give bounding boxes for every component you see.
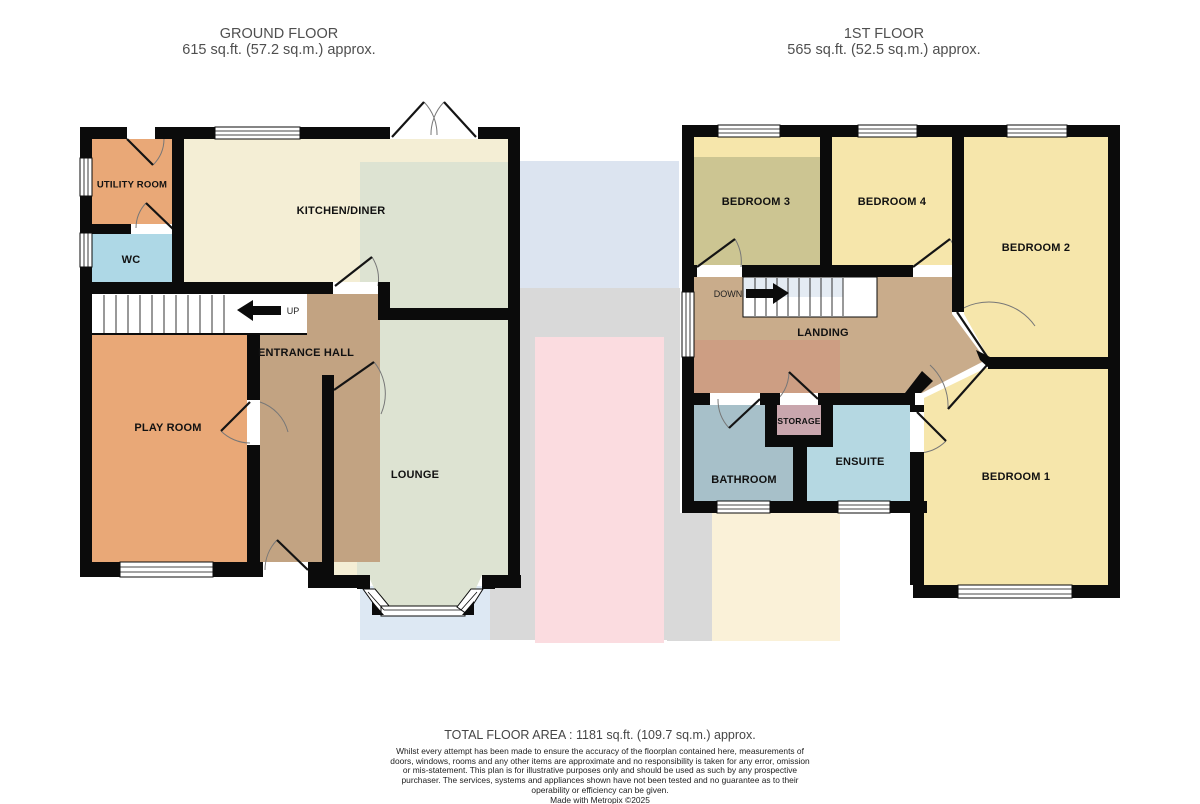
room-label-playroom: PLAY ROOM xyxy=(134,422,201,434)
first-floor-area-text: 565 sq.ft. (52.5 sq.m.) approx. xyxy=(787,42,980,58)
room-label-bathroom: BATHROOM xyxy=(711,474,777,486)
first-floor-stairs xyxy=(743,277,877,317)
ground-floor-stairs xyxy=(92,294,307,335)
window xyxy=(1007,125,1067,137)
room-label-utility: UTILITY ROOM xyxy=(97,180,167,191)
window xyxy=(718,125,780,137)
window xyxy=(858,125,917,137)
room-label-lounge: LOUNGE xyxy=(391,469,439,481)
window xyxy=(80,158,92,196)
room-label-ensuite: ENSUITE xyxy=(835,456,884,468)
room-label-bedroom1: BEDROOM 1 xyxy=(982,471,1050,483)
footer: TOTAL FLOOR AREA : 1181 sq.ft. (109.7 sq… xyxy=(320,728,880,804)
room-label-bedroom4: BEDROOM 4 xyxy=(858,196,926,208)
ground-floor-title-text: GROUND FLOOR xyxy=(182,26,375,42)
window xyxy=(958,585,1072,598)
metropix-credit: Made with Metropix ©2025 xyxy=(320,796,880,804)
room-label-bedroom3: BEDROOM 3 xyxy=(722,196,790,208)
window xyxy=(838,501,890,513)
ground-floor-title: GROUND FLOOR 615 sq.ft. (57.2 sq.m.) app… xyxy=(182,26,375,58)
floorplan-drawing xyxy=(0,0,1200,804)
room-label-landing: LANDING xyxy=(797,327,849,339)
room-label-bedroom2: BEDROOM 2 xyxy=(1002,242,1070,254)
total-floor-area: TOTAL FLOOR AREA : 1181 sq.ft. (109.7 sq… xyxy=(320,728,880,742)
window xyxy=(682,292,694,357)
window xyxy=(717,501,770,513)
window xyxy=(80,233,92,267)
room-label-kitchen: KITCHEN/DINER xyxy=(297,205,386,217)
play-room-area xyxy=(92,335,247,562)
room-label-hall: ENTRANCE HALL xyxy=(258,347,354,359)
disclaimer-text: Whilst every attempt has been made to en… xyxy=(388,747,812,796)
window xyxy=(120,562,213,577)
room-label-storage: STORAGE xyxy=(777,416,820,426)
stairs-down-label: DOWN xyxy=(714,289,743,299)
first-floor-title-text: 1ST FLOOR xyxy=(787,26,980,42)
ground-floor-area-text: 615 sq.ft. (57.2 sq.m.) approx. xyxy=(182,42,375,58)
floorplan-page: GROUND FLOOR 615 sq.ft. (57.2 sq.m.) app… xyxy=(0,0,1200,804)
stairs-up-label: UP xyxy=(287,306,300,316)
room-label-wc: WC xyxy=(122,254,141,266)
window xyxy=(215,127,300,139)
first-floor-title: 1ST FLOOR 565 sq.ft. (52.5 sq.m.) approx… xyxy=(787,26,980,58)
